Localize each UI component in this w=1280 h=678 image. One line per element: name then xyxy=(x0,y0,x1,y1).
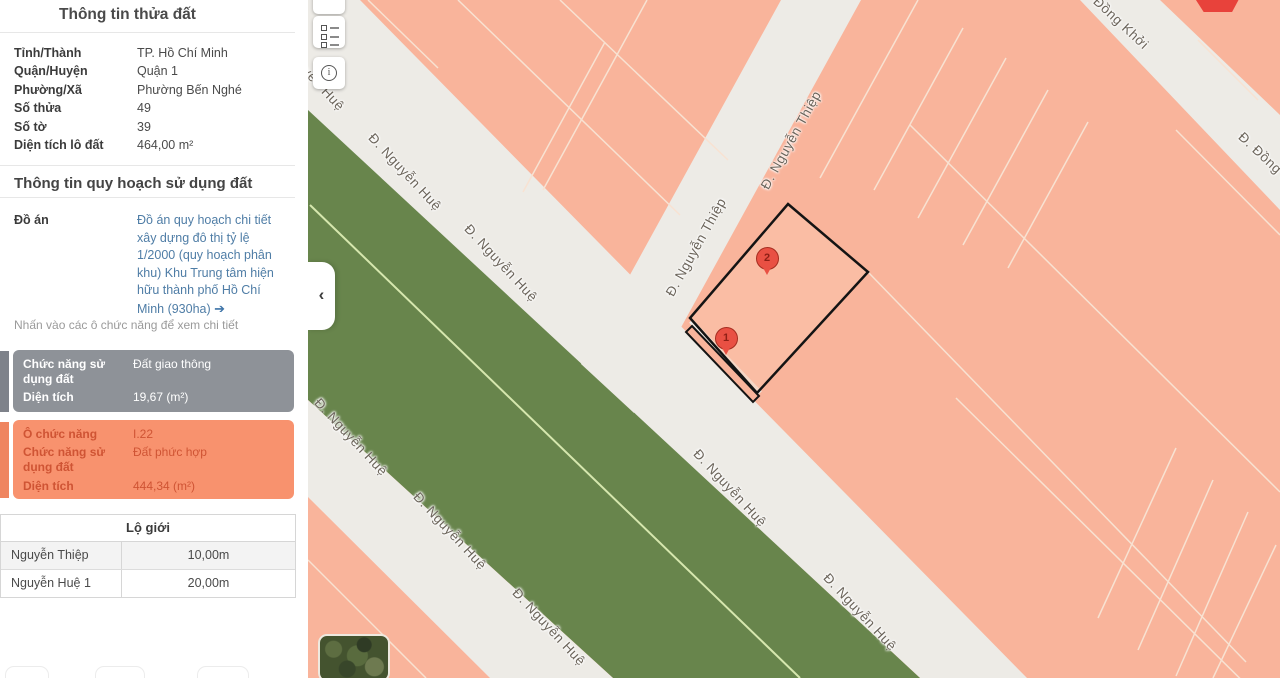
table-row: Nguyễn Thiệp 10,00m xyxy=(1,542,295,570)
project-link[interactable]: Đồ án quy hoạch chi tiết xây dựng đô thị… xyxy=(137,212,285,319)
road-width-table: Lộ giới Nguyễn Thiệp 10,00m Nguyễn Huệ 1… xyxy=(0,514,296,598)
orange-card-accent-strip xyxy=(0,422,9,498)
compass-button[interactable] xyxy=(313,0,345,14)
app-window: Thông tin thửa đất Tỉnh/Thành TP. Hồ Chí… xyxy=(0,0,1280,678)
planning-info-title: Thông tin quy hoạch sử dụng đất xyxy=(0,169,295,198)
bottom-action-button[interactable] xyxy=(95,666,145,678)
satellite-view-toggle[interactable] xyxy=(318,634,390,678)
hint-text: Nhấn vào các ô chức năng để xem chi tiết xyxy=(14,318,238,332)
function-card-mixed-use[interactable]: Ô chức năng I.22 Chức năng sử dụng đất Đ… xyxy=(13,420,294,499)
arrow-right-icon: ➔ xyxy=(214,301,225,316)
map-marker-1[interactable]: 1 xyxy=(715,327,738,350)
field-province: Tỉnh/Thành TP. Hồ Chí Minh xyxy=(0,44,295,62)
sidebar-panel: Thông tin thửa đất Tỉnh/Thành TP. Hồ Chí… xyxy=(0,0,308,678)
divider xyxy=(0,165,295,166)
field-district: Quận/Huyện Quận 1 xyxy=(0,62,295,80)
map-pane[interactable]: Đ. Nguyễn HuệĐ. Nguyễn HuệĐ. Nguyễn HuệĐ… xyxy=(308,0,1280,678)
field-sheet-number: Số tờ 39 xyxy=(0,118,295,136)
legend-button[interactable] xyxy=(313,16,345,48)
project-label: Đồ án xyxy=(14,213,49,227)
legend-list-icon xyxy=(321,25,339,51)
function-card-traffic[interactable]: Chức năng sử dụng đất Đất giao thông Diệ… xyxy=(13,350,294,412)
gray-card-accent-strip xyxy=(0,351,9,412)
field-ward: Phường/Xã Phường Bến Nghé xyxy=(0,81,295,99)
map-marker-2[interactable]: 2 xyxy=(756,247,779,270)
parcel-info-fields: Tỉnh/Thành TP. Hồ Chí Minh Quận/Huyện Qu… xyxy=(0,44,295,154)
sidebar-collapse-button[interactable]: ‹ xyxy=(308,262,335,330)
parcel-info-title: Thông tin thửa đất xyxy=(0,0,295,33)
bottom-action-button[interactable] xyxy=(5,666,49,678)
road-width-table-header: Lộ giới xyxy=(1,515,295,542)
field-parcel-number: Số thửa 49 xyxy=(0,99,295,117)
table-row: Nguyễn Huệ 1 20,00m xyxy=(1,570,295,597)
info-icon: i xyxy=(321,65,337,81)
map-canvas[interactable] xyxy=(308,0,1280,678)
field-lot-area: Diện tích lô đất 464,00 m² xyxy=(0,136,295,154)
info-button[interactable]: i xyxy=(313,57,345,89)
bottom-action-button[interactable] xyxy=(197,666,249,678)
